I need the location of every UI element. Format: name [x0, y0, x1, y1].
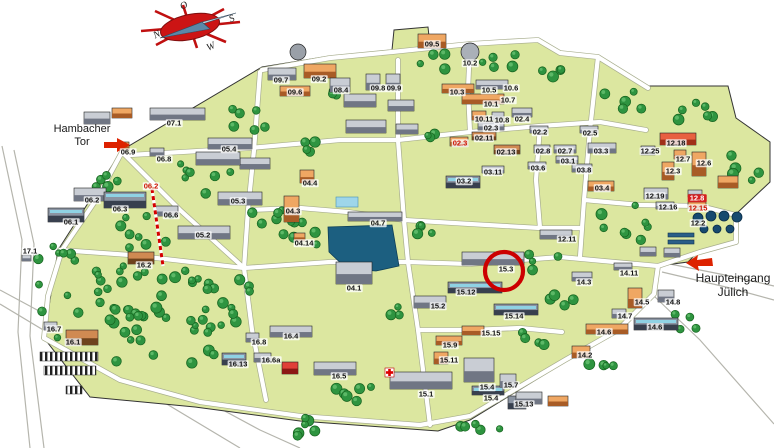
parking-stripes [40, 352, 98, 361]
building-block [472, 386, 504, 395]
building-block [692, 152, 706, 176]
tree-icon [440, 64, 451, 75]
building-block [674, 150, 686, 159]
building-block [282, 362, 298, 374]
tree-icon [141, 239, 151, 249]
tree-icon [460, 422, 469, 431]
tree-icon [596, 209, 607, 220]
building-block [572, 346, 590, 358]
tree-icon [557, 66, 565, 74]
building-block [366, 74, 380, 90]
building-block [66, 330, 98, 345]
treatment-tank [706, 211, 716, 221]
tree-icon [549, 290, 560, 301]
tree-icon [701, 103, 709, 111]
tree-icon [235, 109, 244, 118]
tree-icon [94, 288, 102, 296]
tree-icon [203, 285, 212, 294]
building-block [268, 68, 296, 80]
building-block [222, 353, 246, 365]
gate-haupteingang-line1: Haupteingang [696, 272, 771, 286]
building-block [304, 64, 336, 78]
tree-icon [122, 214, 129, 221]
tree-icon [143, 212, 150, 219]
tree-icon [246, 287, 254, 295]
building-block [386, 74, 400, 90]
building-block [664, 248, 680, 257]
tree-icon [560, 301, 570, 311]
building-block [156, 206, 178, 216]
tree-icon [202, 306, 209, 313]
building-block [436, 336, 462, 345]
building-block [450, 137, 468, 146]
tree-icon [727, 151, 737, 161]
treatment-tank [719, 211, 729, 221]
tree-icon [161, 237, 170, 246]
treatment-tank [732, 212, 742, 222]
building-block [270, 326, 312, 337]
tree-icon [395, 304, 402, 311]
tree-icon [620, 228, 629, 237]
tree-icon [528, 265, 538, 275]
building-block [330, 78, 350, 92]
tree-icon [126, 313, 134, 321]
tree-icon [686, 313, 694, 321]
tree-icon [125, 230, 134, 239]
tree-icon [489, 63, 498, 72]
tree-icon [395, 311, 403, 319]
building-block [150, 148, 164, 156]
gate-hambacher-line1: Hambacher [54, 123, 111, 136]
building-block [254, 353, 271, 362]
tree-icon [117, 277, 128, 288]
building-block [414, 296, 446, 308]
tree-icon [472, 420, 480, 428]
building-block [388, 100, 414, 111]
building-block [572, 164, 592, 172]
tree-icon [229, 121, 239, 131]
red-cross-icon [385, 368, 394, 377]
building-block [396, 124, 418, 134]
building-block [588, 143, 616, 153]
building-block [74, 188, 106, 201]
tree-icon [636, 235, 646, 245]
tree-icon [425, 132, 432, 139]
tree-icon [678, 106, 686, 114]
tree-icon [187, 358, 198, 369]
tree-icon [186, 168, 195, 177]
tree-icon [102, 171, 110, 179]
tree-icon [603, 362, 610, 369]
tree-icon [95, 271, 102, 278]
tree-icon [279, 230, 288, 239]
building-block [580, 126, 598, 133]
parking-stripes [66, 386, 82, 394]
gate-label-haupteingang: Haupteingang Jülich [696, 272, 771, 300]
tree-icon [293, 431, 302, 440]
building-block [104, 192, 146, 208]
small-pool [336, 197, 358, 207]
building-block [442, 84, 474, 93]
tree-icon [554, 252, 562, 260]
building-block [688, 202, 706, 208]
water-tower [461, 43, 479, 61]
tree-icon [428, 229, 435, 236]
tree-icon [104, 285, 112, 293]
building-block [472, 132, 496, 140]
building-block [478, 122, 504, 130]
tree-icon [479, 59, 486, 66]
tree-icon [34, 254, 44, 264]
tree-icon [218, 322, 225, 329]
treatment-tank [726, 225, 734, 233]
tree-icon [310, 137, 321, 148]
tree-icon [352, 396, 362, 406]
tree-icon [96, 298, 105, 307]
tree-icon [134, 311, 143, 320]
building-block [556, 156, 578, 163]
tree-icon [195, 276, 202, 283]
tree-icon [642, 219, 649, 226]
tree-icon [187, 316, 196, 325]
building-block [612, 309, 626, 318]
tree-icon [673, 114, 684, 125]
tree-icon [111, 305, 121, 315]
tree-icon [157, 274, 167, 284]
tree-icon [342, 391, 353, 402]
tree-icon [105, 315, 115, 325]
building-block [482, 166, 504, 173]
tree-icon [754, 168, 764, 178]
building-block [512, 108, 532, 117]
building-block [718, 176, 738, 188]
building-block [246, 333, 259, 342]
tree-icon [177, 161, 183, 167]
tree-icon [303, 146, 311, 154]
tree-icon [201, 188, 211, 198]
tree-icon [136, 336, 145, 345]
building-block [294, 233, 305, 241]
tree-icon [521, 333, 530, 342]
tree-icon [671, 310, 679, 318]
tree-icon [618, 104, 628, 114]
tree-icon [302, 414, 310, 422]
tree-icon [181, 267, 189, 275]
building-block [554, 145, 576, 153]
tree-icon [386, 310, 396, 320]
building-block [284, 196, 299, 222]
tree-icon [568, 295, 578, 305]
gate-haupteingang-line2: Jülich [696, 286, 771, 300]
building-block [128, 252, 154, 264]
tree-icon [209, 350, 218, 359]
treatment-tank [713, 225, 721, 233]
basin-row [668, 240, 694, 244]
tree-icon [169, 272, 180, 283]
building-block [346, 120, 386, 133]
building-block [240, 158, 270, 169]
tree-icon [54, 334, 61, 341]
building-block [548, 396, 568, 406]
tree-icon [355, 384, 365, 394]
tree-icon [703, 112, 712, 121]
treatment-tank [693, 213, 703, 223]
tree-icon [547, 71, 558, 82]
building-block [641, 146, 655, 155]
tree-icon [59, 249, 67, 257]
building-block [218, 192, 262, 205]
tree-icon [35, 281, 42, 288]
building-block [344, 94, 376, 107]
campus-map: O S W N Hambacher Tor Haupteingang Jülic… [0, 0, 774, 448]
tree-icon [630, 88, 637, 95]
building-block [662, 162, 674, 180]
tree-icon [127, 336, 134, 343]
tree-icon [313, 241, 320, 248]
tree-icon [204, 328, 212, 336]
map-canvas [0, 0, 774, 448]
tree-icon [637, 104, 646, 113]
tree-icon [141, 268, 148, 275]
building-block [500, 374, 516, 387]
tree-icon [496, 426, 502, 432]
tree-icon [133, 272, 142, 281]
building-block [534, 145, 550, 153]
building-block [446, 176, 480, 188]
building-block [300, 170, 314, 183]
tree-icon [247, 208, 257, 218]
tree-icon [157, 291, 167, 301]
tree-icon [692, 99, 699, 106]
tree-icon [149, 351, 158, 360]
tree-icon [367, 383, 374, 390]
building-block [516, 392, 542, 404]
tree-icon [116, 221, 126, 231]
tree-icon [274, 209, 283, 218]
tree-icon [600, 224, 608, 232]
tree-icon [250, 125, 259, 134]
tree-icon [301, 138, 310, 147]
building-block [644, 188, 668, 199]
building-block [178, 226, 230, 239]
building-block [688, 190, 702, 197]
building-block [528, 162, 546, 169]
tree-icon [529, 258, 536, 265]
building-block [462, 94, 504, 104]
tree-icon [310, 227, 320, 237]
building-block [494, 304, 538, 315]
tree-icon [609, 362, 617, 370]
basin-row [668, 233, 694, 237]
tree-icon [257, 219, 266, 228]
building-block [112, 108, 132, 118]
building-block [492, 112, 504, 120]
tree-icon [538, 67, 546, 75]
building-block [418, 34, 446, 48]
tree-icon [418, 222, 425, 229]
tree-icon [135, 233, 142, 240]
building-block [656, 202, 674, 209]
building-block [314, 362, 356, 375]
building-block [434, 352, 448, 364]
tree-icon [210, 171, 220, 181]
tree-icon [120, 327, 130, 337]
gas-holder [290, 44, 306, 60]
tree-icon [412, 228, 423, 239]
building-block [462, 326, 484, 335]
tree-icon [234, 275, 244, 285]
tree-icon [748, 177, 755, 184]
building-block [44, 322, 57, 330]
tree-icon [600, 89, 610, 99]
tree-icon [113, 177, 121, 185]
tree-icon [73, 308, 83, 318]
tree-icon [198, 315, 207, 324]
building-block [640, 247, 656, 256]
tree-icon [439, 49, 449, 59]
building-block [390, 372, 452, 389]
tree-icon [489, 53, 497, 61]
treatment-tank [700, 225, 708, 233]
tree-icon [539, 339, 549, 349]
building-block [208, 138, 252, 149]
building-block [464, 358, 494, 382]
tree-icon [692, 324, 700, 332]
building-block [634, 318, 678, 330]
tree-icon [218, 297, 229, 308]
building-block [586, 324, 628, 334]
tree-icon [112, 356, 122, 366]
building-block [476, 80, 508, 89]
tree-icon [261, 123, 270, 132]
tree-icon [132, 325, 142, 335]
building-block [150, 108, 205, 120]
tree-icon [507, 61, 518, 72]
tree-icon [584, 358, 595, 369]
building-block [196, 152, 240, 165]
building-block [48, 208, 84, 222]
building-block [494, 145, 520, 154]
parking-stripes [44, 366, 96, 375]
tree-icon [188, 277, 195, 284]
building-block [658, 290, 674, 302]
tree-icon [38, 307, 47, 316]
tree-icon [151, 302, 162, 313]
tree-icon [511, 50, 520, 59]
building-block [540, 230, 572, 239]
building-block [22, 255, 31, 261]
building-block [348, 212, 402, 221]
building-block [614, 263, 632, 270]
building-block [336, 262, 372, 284]
tree-icon [227, 168, 234, 175]
building-block [588, 181, 614, 191]
tree-icon [64, 292, 71, 299]
building-block [660, 133, 696, 145]
tree-icon [125, 244, 133, 252]
building-block [530, 126, 548, 133]
building-block [472, 111, 486, 120]
tree-icon [632, 202, 639, 209]
gate-label-hambacher: Hambacher Tor [54, 123, 111, 148]
building-block [280, 86, 310, 96]
building-block [572, 272, 592, 281]
tree-icon [229, 309, 238, 318]
tree-icon [116, 268, 123, 275]
gate-hambacher-line2: Tor [54, 136, 111, 149]
tree-icon [417, 60, 424, 67]
tree-icon [428, 50, 438, 60]
tree-icon [50, 243, 57, 250]
tree-icon [252, 107, 260, 115]
tree-icon [310, 426, 320, 436]
building-block [628, 288, 642, 308]
